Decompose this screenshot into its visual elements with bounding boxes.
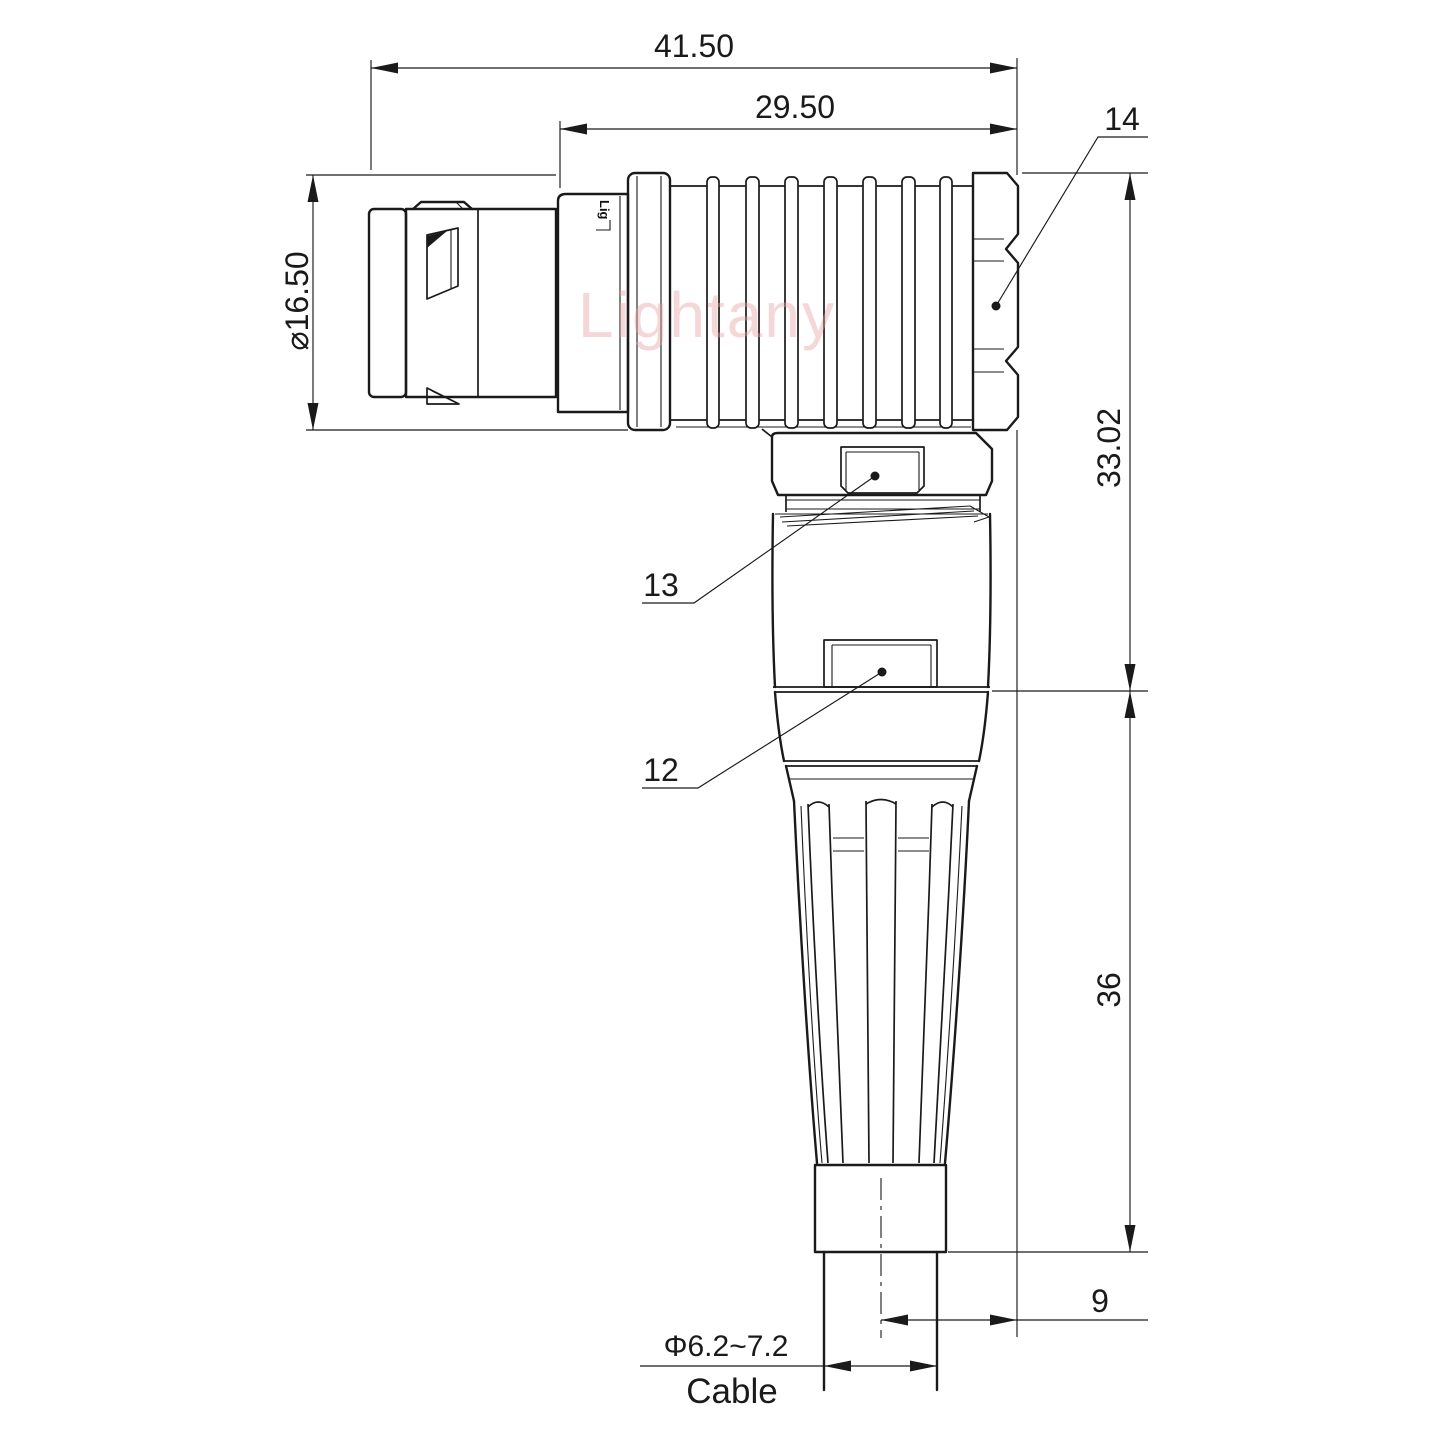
arrowhead [308,175,319,202]
arrowhead [1125,691,1136,718]
part-label-14-text: 14 [1104,101,1140,137]
arrowhead [308,403,319,430]
shell-engraving-text: Lig [597,200,612,220]
rib [863,177,876,428]
part-label-13-text: 13 [643,567,679,603]
arrowhead [881,1315,908,1326]
arrowhead [1125,173,1136,200]
dim-height-lower-text: 36 [1091,972,1127,1008]
elbow-collar [762,429,992,495]
connector-drawing-svg: Lig [0,0,1440,1440]
dim-cable-diameter-text: Φ6.2~7.2 [664,1330,789,1363]
dimension-height-lower: 36 [948,691,1148,1252]
arrowhead [1125,664,1136,691]
rib [940,177,952,428]
leader-dot [878,668,887,677]
dimension-shell-diameter: ⌀16.50 [279,175,628,430]
hex-nut [973,173,1018,430]
watermark-text: Lightany [578,279,836,351]
front-barrel [406,202,556,404]
engraving-mark [596,220,610,230]
dimension-total-length: 41.50 [371,28,1017,175]
dim-height-upper-text: 33.02 [1091,408,1127,488]
cable-label-text: Cable [686,1372,777,1411]
window-13 [841,447,924,493]
keyway-window [427,228,458,299]
part-label-14: 14 [992,101,1149,311]
leader-dot [992,302,1001,311]
strain-relief-flutes [794,800,969,1164]
arrowhead [990,63,1017,74]
dim-rear-length-text: 29.50 [755,89,835,125]
arrowhead [990,124,1017,135]
dimension-cable-diameter: Φ6.2~7.2 Cable [640,1330,937,1411]
arrowhead [371,63,398,74]
arrowhead [1125,1225,1136,1252]
part-label-12: 12 [642,668,887,789]
dimension-height-upper: 33.02 [992,173,1148,691]
part-label-12-text: 12 [643,752,679,788]
arrowhead [990,1315,1017,1326]
dim-total-length-text: 41.50 [654,28,734,64]
arrowhead [824,1361,851,1372]
rib [902,177,915,428]
dim-shell-diameter-text: ⌀16.50 [279,251,315,350]
arrowhead [910,1361,937,1372]
dim-cable-offset-text: 9 [1091,1283,1109,1319]
window-12 [824,640,937,687]
body-sleeve [772,514,990,801]
front-lip [369,209,406,397]
dimension-cable-offset: 9 [881,1283,1148,1326]
dimension-rear-length: 29.50 [560,89,1017,188]
engineering-drawing-page: Lig [0,0,1440,1440]
part-label-13: 13 [642,472,880,604]
leader-dot [871,472,880,481]
connector-vertical-body [762,429,992,1390]
arrowhead [560,124,587,135]
